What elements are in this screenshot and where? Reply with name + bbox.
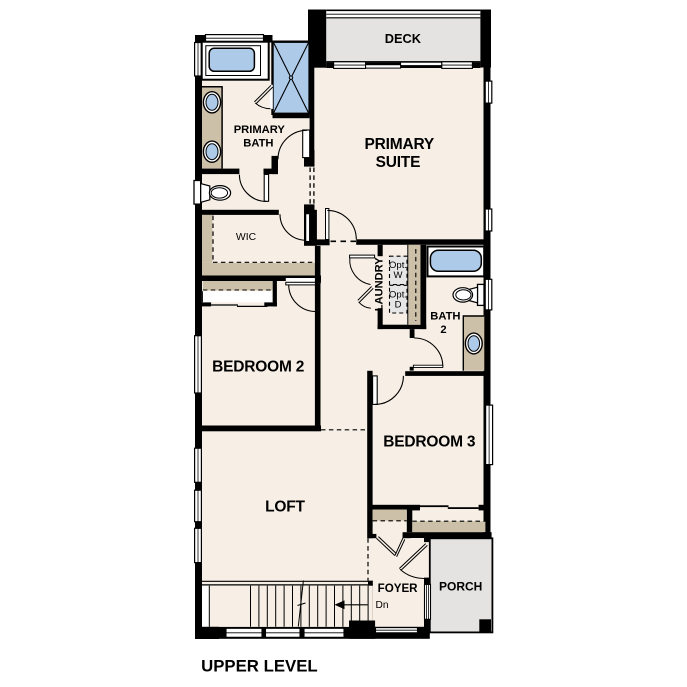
- svg-text:SUITE: SUITE: [376, 154, 421, 171]
- svg-text:Dn: Dn: [376, 600, 389, 611]
- svg-text:UPPER LEVEL: UPPER LEVEL: [201, 657, 318, 676]
- svg-text:LAUNDRY: LAUNDRY: [373, 257, 385, 311]
- svg-text:FOYER: FOYER: [378, 582, 419, 595]
- svg-text:BATH: BATH: [243, 138, 273, 150]
- svg-text:PRIMARY: PRIMARY: [234, 124, 286, 136]
- svg-text:WIC: WIC: [236, 232, 257, 243]
- svg-text:2: 2: [440, 324, 446, 336]
- svg-text:DECK: DECK: [385, 31, 422, 46]
- svg-text:PRIMARY: PRIMARY: [365, 136, 435, 153]
- svg-text:D: D: [395, 300, 402, 311]
- svg-text:BATH: BATH: [430, 311, 460, 323]
- svg-text:LOFT: LOFT: [265, 499, 305, 516]
- svg-text:BEDROOM 2: BEDROOM 2: [212, 359, 304, 376]
- svg-text:BEDROOM 3: BEDROOM 3: [383, 434, 476, 451]
- svg-text:W: W: [394, 270, 403, 281]
- svg-text:PORCH: PORCH: [439, 579, 482, 593]
